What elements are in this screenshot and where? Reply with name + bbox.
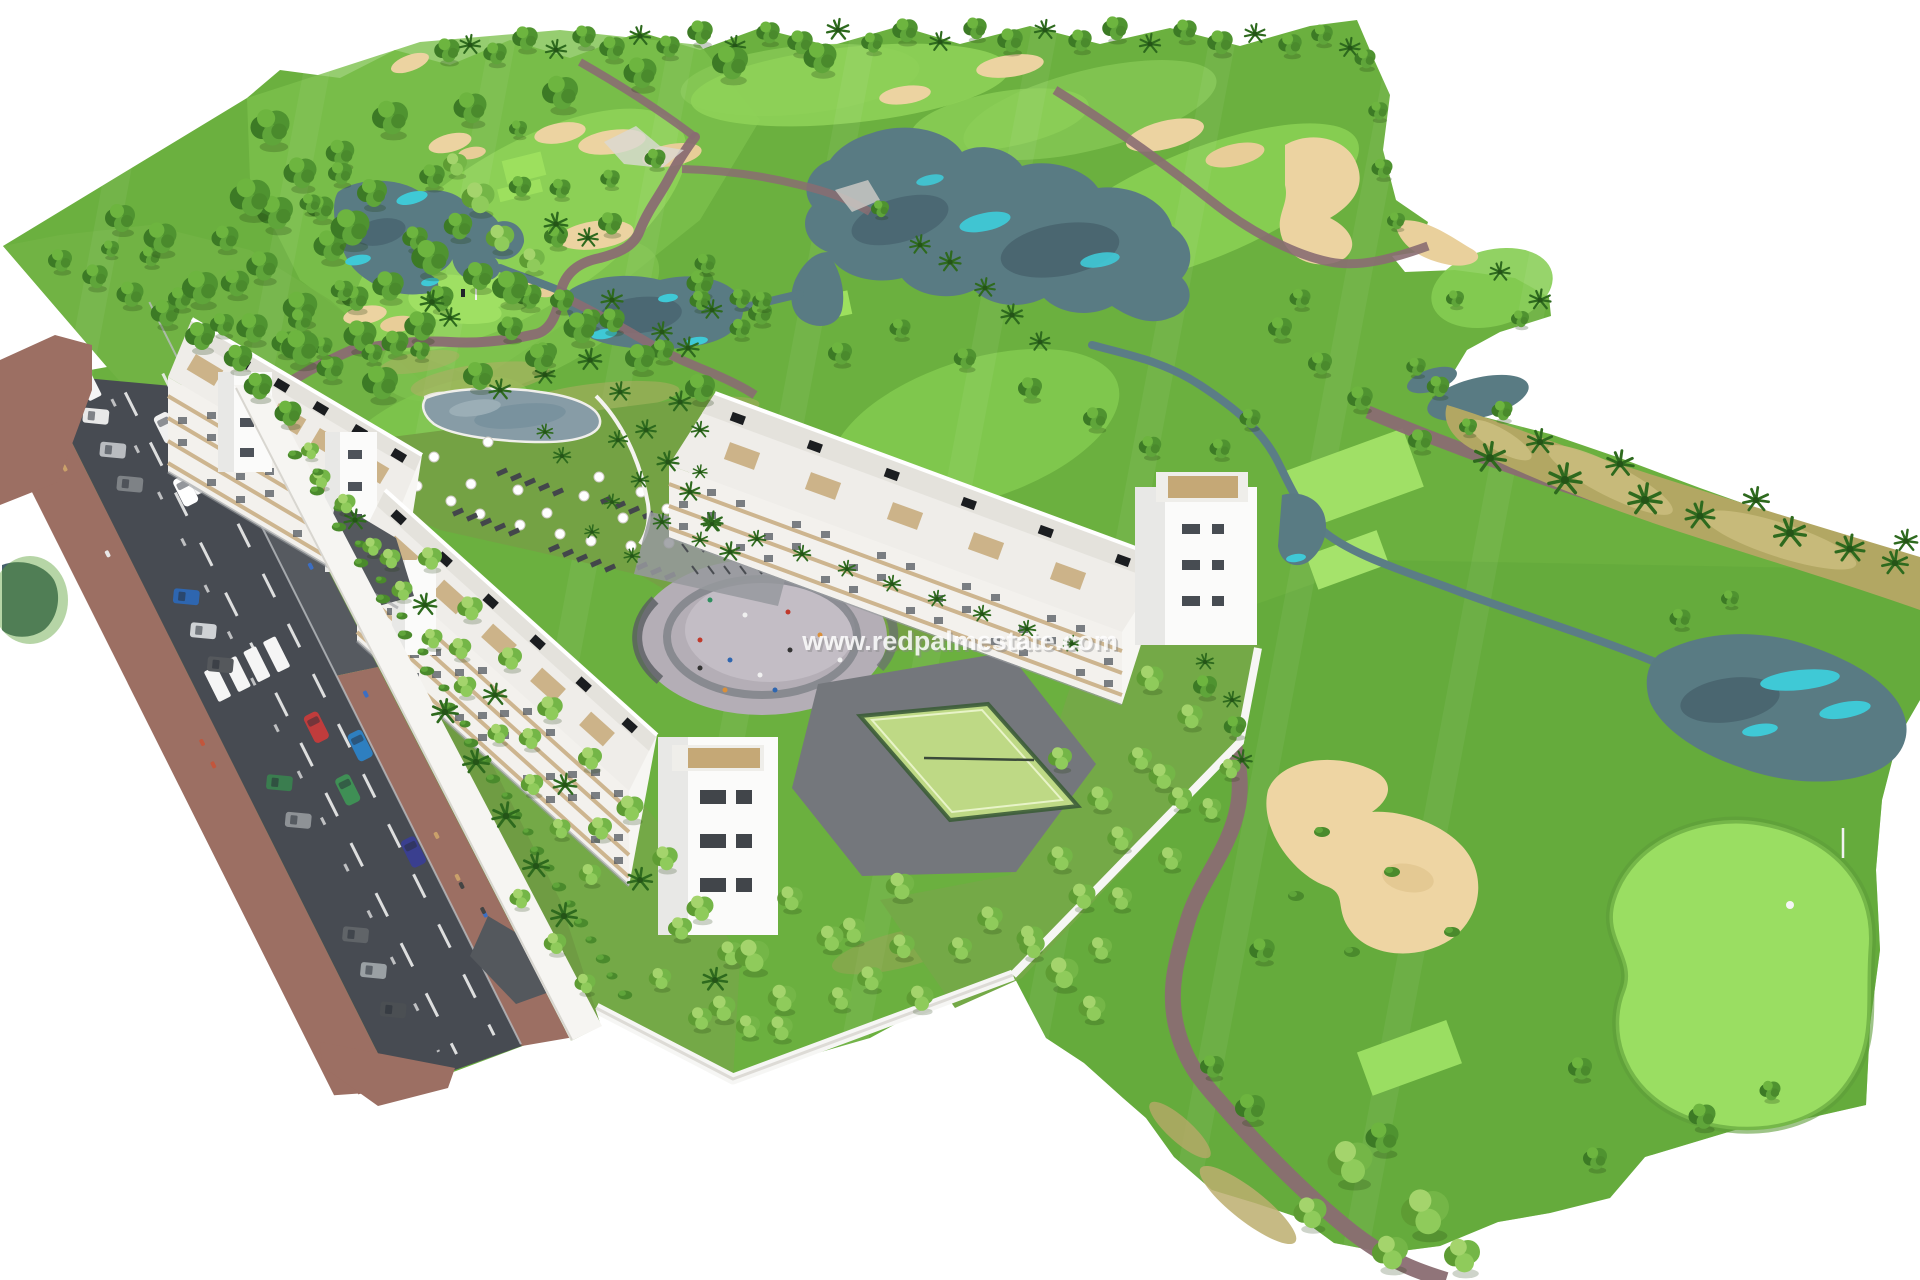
svg-text:www.redpalmestate.com: www.redpalmestate.com bbox=[801, 626, 1118, 656]
